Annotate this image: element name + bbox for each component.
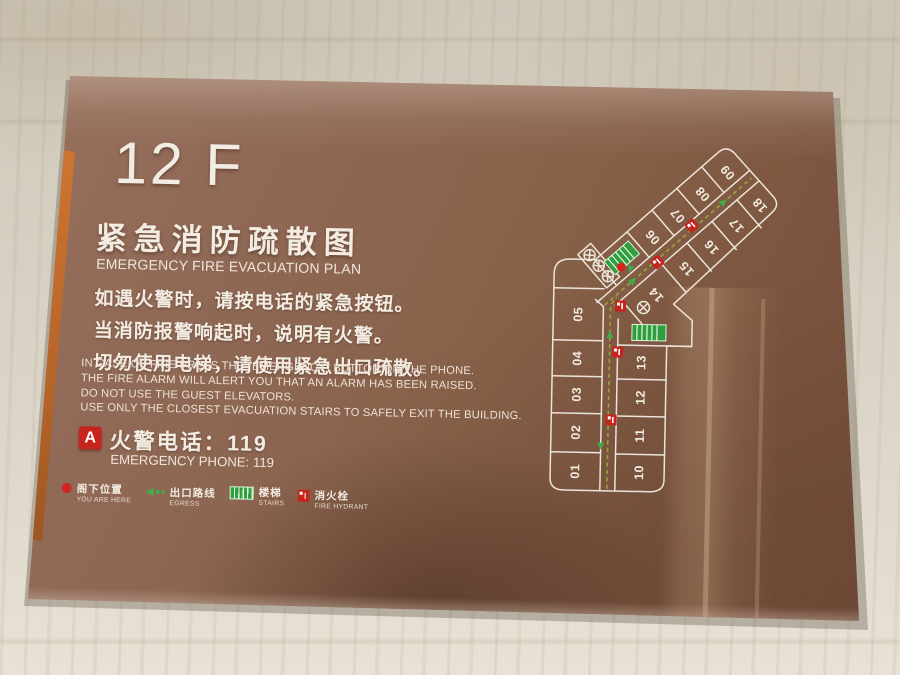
- egress-arrow-icon: [146, 488, 165, 496]
- legend-item-egress: 出口路线 EGRESS: [145, 485, 215, 508]
- room-number: 10: [632, 465, 646, 480]
- legend-en: EGRESS: [169, 500, 215, 508]
- stairs-icon: [230, 486, 254, 499]
- phone-label-english: EMERGENCY PHONE: 119: [110, 452, 274, 470]
- room-numbers: 01 02 03 04 05 10 11 12 13 06 07 08 09 1…: [568, 157, 771, 483]
- legend-item-fire-hydrant: 消火栓 FIRE HYDRANT: [297, 488, 368, 511]
- floor-number: 12 F: [114, 129, 245, 200]
- phone-icon: A: [79, 426, 102, 449]
- room-number: 09: [717, 162, 737, 182]
- room-number: 03: [570, 387, 584, 402]
- floor-plan: 01 02 03 04 05 10 11 12 13 06 07 08 09 1…: [536, 116, 794, 511]
- elevator-icon: [637, 301, 649, 313]
- sign-content: 12 F 紧急消防疏散图 EMERGENCY FIRE EVACUATION P…: [0, 0, 900, 675]
- room-number: 07: [668, 205, 688, 225]
- title-chinese: 紧急消防疏散图: [95, 213, 362, 263]
- legend-en: STAIRS: [258, 500, 284, 508]
- legend-item-stairs: 楼梯 STAIRS: [229, 484, 284, 507]
- room-number: 16: [701, 237, 721, 257]
- evacuation-sign-panel: 12 F 紧急消防疏散图 EMERGENCY FIRE EVACUATION P…: [0, 0, 900, 675]
- room-number: 17: [726, 215, 746, 235]
- fire-hydrant-icon: [298, 490, 310, 502]
- room-number: 05: [571, 307, 585, 322]
- legend-item-you-are-here: 阁下位置 YOU ARE HERE: [61, 481, 131, 504]
- you-are-here-icon: [62, 483, 72, 493]
- legend-zh: 出口路线: [170, 485, 216, 501]
- legend-en: YOU ARE HERE: [76, 496, 131, 504]
- room-number: 15: [676, 258, 696, 278]
- room-number: 14: [646, 284, 666, 304]
- room-number: 18: [750, 195, 770, 215]
- room-number: 08: [693, 184, 713, 204]
- room-number: 13: [634, 355, 648, 370]
- wall-vein: [0, 38, 900, 41]
- legend-zh: 楼梯: [259, 485, 285, 501]
- room-number: 04: [570, 351, 584, 366]
- room-number: 12: [634, 390, 648, 405]
- wall-vein: [0, 640, 900, 643]
- legend-en: FIRE HYDRANT: [314, 503, 368, 511]
- legend-zh: 消火栓: [314, 488, 368, 504]
- legend-zh: 阁下位置: [77, 481, 132, 497]
- room-number: 01: [568, 464, 582, 479]
- room-number: 02: [569, 425, 583, 440]
- room-number: 11: [633, 428, 647, 442]
- instructions-english: IN CASE OF FIRE PRESS THE "EMERGENCY" BU…: [80, 356, 523, 424]
- room-number: 06: [643, 227, 663, 247]
